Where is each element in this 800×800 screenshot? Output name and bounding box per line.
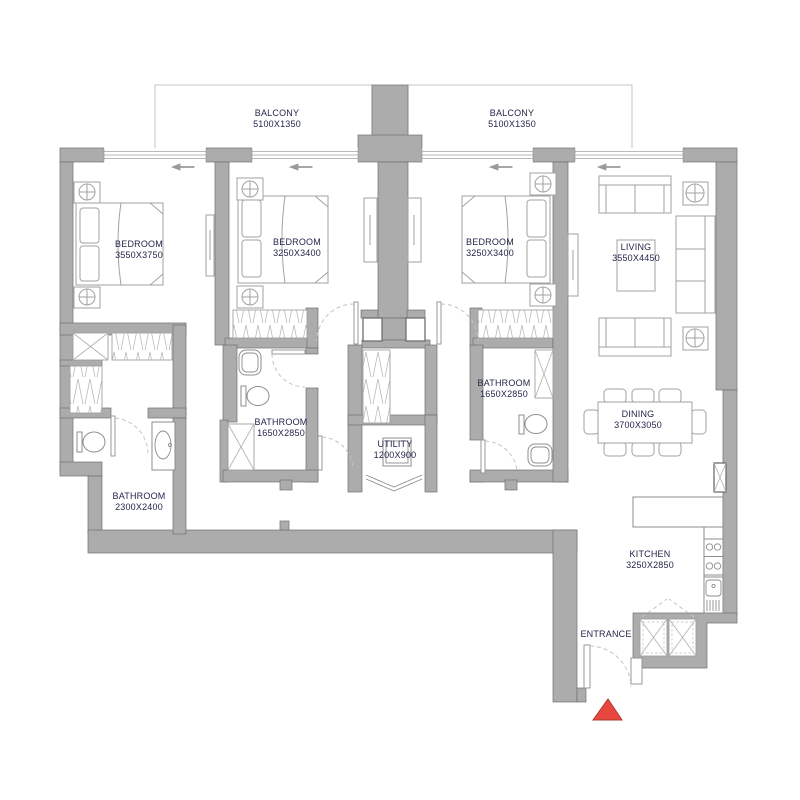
dining-chair-icon xyxy=(659,442,681,456)
bathroom-3-dims: 2300X2400 xyxy=(115,502,163,512)
tv-unit-icon xyxy=(364,198,377,262)
kitchen-dims: 3250X2850 xyxy=(626,560,674,570)
toilet-icon xyxy=(241,386,269,406)
dining-chair-icon xyxy=(604,442,626,456)
bedroom-1-dims: 3550X3750 xyxy=(115,250,163,260)
bedroom-1-label: BEDROOM xyxy=(115,239,163,249)
door-bedroom-2 xyxy=(317,302,358,344)
washbasin-icon xyxy=(239,350,261,375)
bedroom-3-label: BEDROOM xyxy=(466,237,514,247)
shaft-box-right xyxy=(406,318,425,341)
toilet-icon xyxy=(519,415,547,435)
wardrobe-corridor xyxy=(363,350,390,423)
appliance-box-icon xyxy=(669,619,696,656)
shower-icon xyxy=(535,350,553,398)
shaft-dining-wall xyxy=(714,463,726,492)
wardrobe-bedroom-3 xyxy=(478,310,553,338)
bathroom-2-label: BATHROOM xyxy=(478,378,531,388)
toilet-icon xyxy=(77,432,105,452)
sofa-icon xyxy=(599,318,671,356)
dining-label: DINING xyxy=(622,409,655,419)
sofa-icon xyxy=(676,216,715,313)
window-bedroom-3 xyxy=(422,148,533,162)
window-bedroom-2 xyxy=(252,148,358,162)
bedside-lamp-icon xyxy=(530,284,556,306)
door-bathroom-3 xyxy=(111,416,148,456)
dining-chair-icon xyxy=(584,410,599,434)
bedside-lamp-icon xyxy=(237,286,263,308)
side-table-lamp-icon xyxy=(683,327,708,350)
entrance-label: ENTRANCE xyxy=(580,629,631,639)
balcony-2-label: BALCONY xyxy=(490,108,534,118)
stove-icon xyxy=(704,539,723,575)
washbasin-icon xyxy=(528,444,552,466)
sofa-icon xyxy=(599,176,671,213)
balcony-1-label: BALCONY xyxy=(255,108,299,118)
dining-dims: 3700X3050 xyxy=(614,420,662,430)
living-furniture xyxy=(568,176,715,356)
dining-chair-icon xyxy=(632,389,654,403)
tv-unit-icon xyxy=(206,215,214,276)
bedside-lamp-icon xyxy=(74,182,100,203)
bedside-lamp-icon xyxy=(74,287,100,308)
wardrobe-dressing xyxy=(70,366,102,413)
bedroom-2-dims: 3250X3400 xyxy=(273,248,321,258)
dining-chair-icon xyxy=(659,389,681,403)
shower-icon xyxy=(228,424,254,470)
entrance-direction-marker-icon xyxy=(593,699,622,720)
utility-double-door xyxy=(366,475,422,491)
tv-unit-icon xyxy=(568,234,578,296)
utility-dims: 1200X900 xyxy=(374,450,417,460)
sink-icon xyxy=(704,577,723,613)
bedside-lamp-icon xyxy=(237,178,263,200)
wardrobe-bedroom-1 xyxy=(112,333,172,360)
vanity-sink-icon xyxy=(152,422,175,470)
wardrobe-bedroom-2 xyxy=(233,310,307,338)
shaft-box-left xyxy=(363,318,382,341)
dining-chair-icon xyxy=(632,442,654,456)
floor-plan: BALCONY 5100X1350 BALCONY 5100X1350 BEDR… xyxy=(0,0,800,800)
balcony-2-dims: 5100X1350 xyxy=(488,119,536,129)
dining-chair-icon xyxy=(604,389,626,403)
floor-plan-drawing: BALCONY 5100X1350 BALCONY 5100X1350 BEDR… xyxy=(0,0,800,800)
kitchen-fixtures xyxy=(633,497,723,656)
window-bedroom-1 xyxy=(104,148,206,162)
balcony-1-dims: 5100X1350 xyxy=(253,119,301,129)
bathroom-2-dims: 1650X2850 xyxy=(480,389,528,399)
bathroom-1-label: BATHROOM xyxy=(255,417,308,427)
side-table-lamp-icon xyxy=(683,182,708,205)
bedroom-2-label: BEDROOM xyxy=(273,237,321,247)
bedside-lamp-icon xyxy=(530,173,556,195)
bedroom-3-dims: 3250X3400 xyxy=(466,248,514,258)
appliance-box-icon xyxy=(640,619,667,656)
door-bathroom-2 xyxy=(481,440,517,473)
bathroom-2-fixtures xyxy=(519,350,553,466)
door-bathroom-1 xyxy=(272,350,305,387)
living-dims: 3550X4450 xyxy=(612,253,660,263)
kitchen-counter xyxy=(633,497,723,527)
bathroom-1-dims: 1650X2850 xyxy=(257,428,305,438)
bathroom-3-label: BATHROOM xyxy=(113,491,166,501)
closet-box-bedroom-1 xyxy=(73,333,108,360)
dining-chair-icon xyxy=(691,410,706,434)
living-label: LIVING xyxy=(621,242,652,252)
utility-label: UTILITY xyxy=(378,439,413,449)
tv-unit-icon xyxy=(408,198,421,262)
kitchen-label: KITCHEN xyxy=(630,549,671,559)
window-living xyxy=(575,148,683,162)
